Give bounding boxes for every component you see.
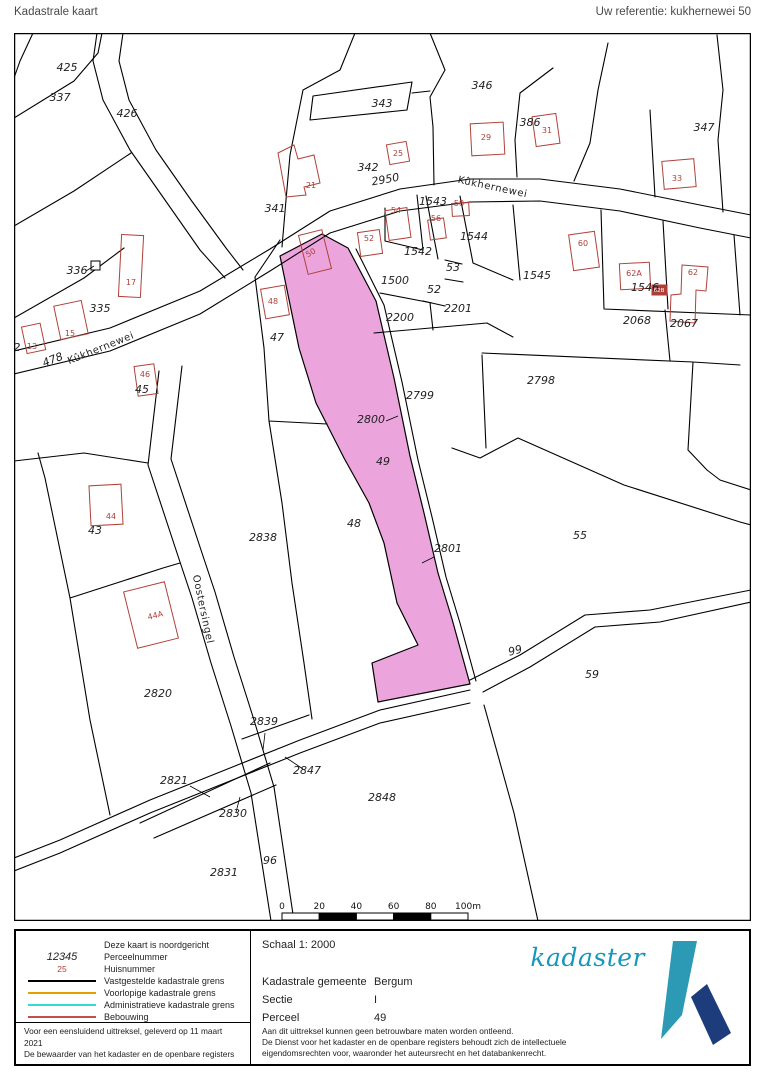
cadastral-extract-page: { "header": { "title": "Kadastrale kaart… [0, 0, 765, 1080]
parcel-label-2801: 2801 [434, 542, 462, 555]
road-name-0: Kûkhernewei [457, 174, 529, 200]
parcel-label-55: 55 [573, 529, 587, 542]
parcel-label-342: 342 [358, 161, 379, 174]
disclaimer-line: eigendomsrechten voor, waaronder het aut… [262, 1048, 572, 1059]
parcel-label-2799: 2799 [406, 389, 434, 402]
info-field: Perceel49 [262, 1009, 562, 1027]
legend-item-label: Bebouwing [104, 1011, 149, 1023]
house-number-44A: 44A [147, 609, 165, 622]
legend-item: Administratieve kadastrale grens [16, 999, 250, 1011]
parcel-label-1543: 1543 [419, 195, 447, 208]
legend-line-swatch [28, 992, 96, 994]
parcel-label-96: 96 [263, 854, 277, 867]
parcel-label-478: 478 [41, 350, 65, 370]
parcel-label-2830: 2830 [219, 807, 247, 820]
parcel-label-386: 386 [520, 116, 541, 129]
parcel-label-53: 53 [446, 261, 460, 274]
scale-bar-segment [356, 913, 393, 920]
parcel-label-335: 335 [90, 302, 111, 315]
parcel-label-43: 43 [88, 524, 102, 537]
kadaster-logo-mark [655, 939, 735, 1051]
house-number-58: 58 [454, 199, 464, 208]
house-number-13: 13 [27, 342, 37, 351]
info-field-value: 49 [374, 1009, 386, 1027]
parcel-label-49: 49 [376, 455, 390, 468]
parcel-label-425: 425 [57, 61, 78, 74]
house-number-21: 21 [306, 181, 316, 190]
scale-tick-80: 80 [425, 902, 437, 912]
parcel-label-1542: 1542 [404, 245, 432, 258]
legend-sample: 25 [26, 963, 98, 975]
parcel-label-2201: 2201 [444, 302, 472, 315]
page-header: Kadastrale kaart Uw referentie: kukherne… [14, 6, 751, 18]
parcel-label-2848: 2848 [368, 791, 396, 804]
house-number-33: 33 [672, 174, 682, 183]
scale-label: Schaal 1: 2000 [262, 939, 562, 951]
parcel-label-346: 346 [472, 79, 493, 92]
house-number-48: 48 [268, 297, 278, 306]
scale-bar: 020406080100m [279, 902, 481, 920]
house-number-52: 52 [364, 234, 374, 243]
info-field-value: Bergum [374, 973, 413, 991]
house-number-25: 25 [393, 149, 403, 158]
parcel-label-1544: 1544 [460, 230, 488, 243]
legend-item: 25Huisnummer [16, 963, 250, 975]
scale-bar-segment [319, 913, 356, 920]
parcel-label-48: 48 [347, 517, 361, 530]
scale-bar-segment [282, 913, 319, 920]
house-number-62: 62 [688, 268, 698, 277]
parcel-label-343: 343 [372, 97, 393, 110]
road-name-1: Kûkhernewei [66, 329, 136, 367]
legend-item-label: Administratieve kadastrale grens [104, 999, 235, 1011]
scale-tick-100m: 100m [455, 902, 481, 912]
legend-item: Vastgestelde kadastrale grens [16, 975, 250, 987]
parcel-label-1500: 1500 [381, 274, 409, 287]
parcel-label-52: 52 [427, 283, 441, 296]
legend-line-swatch [28, 1016, 96, 1018]
delivery-note: Voor een eensluidend uittreksel, gelever… [16, 1022, 250, 1064]
legend-item-label: Huisnummer [104, 963, 155, 975]
parcel-label-341: 341 [265, 202, 286, 215]
parcel-label-47: 47 [270, 331, 284, 344]
parcel-label-2068: 2068 [623, 314, 651, 327]
north-note: Deze kaart is noordgericht [104, 939, 209, 951]
legend-item-label: Vastgestelde kadastrale grens [104, 975, 224, 987]
legend-line-swatch [28, 980, 96, 982]
parcel-label-45: 45 [135, 383, 149, 396]
document-title: Kadastrale kaart [14, 6, 98, 18]
house-number-17: 17 [126, 278, 136, 287]
parcel-label-2798: 2798 [527, 374, 555, 387]
info-field: Kadastrale gemeenteBergum [262, 973, 562, 991]
legend-sample: 12345 [26, 951, 98, 963]
delivery-note-line1: Voor een eensluidend uittreksel, gelever… [24, 1026, 242, 1048]
house-number-44: 44 [106, 512, 116, 521]
legend-item: 12345Perceelnummer [16, 951, 250, 963]
scale-tick-60: 60 [388, 902, 400, 912]
legend-item: Bebouwing [16, 1011, 250, 1023]
building-17 [118, 234, 143, 297]
parcel-label-2800: 2800 [357, 413, 385, 426]
parcel-label-2820: 2820 [144, 687, 172, 700]
parcel-label-59: 59 [585, 668, 599, 681]
disclaimer-line: Aan dit uittreksel kunnen geen betrouwba… [262, 1026, 572, 1037]
parcel-label-336: 336 [67, 264, 88, 277]
selected-parcel-49 [280, 234, 470, 702]
house-number-62A: 62A [626, 269, 642, 278]
kadaster-logo-text: kadaster [530, 943, 645, 972]
house-number-54: 54 [391, 206, 401, 215]
cadastral-map: KûkherneweiKûkherneweiOostersingel 42533… [14, 33, 751, 921]
house-number-29: 29 [481, 133, 491, 142]
building-60 [569, 231, 600, 270]
parcel-label-337: 337 [50, 91, 71, 104]
scale-bar-segment [394, 913, 431, 920]
logo-mark-blue-leg [691, 984, 731, 1045]
info-field: SectieI [262, 991, 562, 1009]
info-field-label: Kadastrale gemeente [262, 973, 374, 991]
house-number-56: 56 [431, 214, 441, 223]
house-number-15: 15 [65, 329, 75, 338]
kadaster-logo: kadaster [530, 939, 735, 1051]
house-number-60: 60 [578, 239, 588, 248]
legend-info-panel: Deze kaart is noordgericht 12345Perceeln… [14, 929, 751, 1066]
parcel-label-2831: 2831 [210, 866, 238, 879]
legend: Deze kaart is noordgericht 12345Perceeln… [16, 931, 250, 1023]
info-field-value: I [374, 991, 377, 1009]
reference-label: Uw referentie: kukhernewei 50 [596, 6, 751, 18]
legend-item-label: Perceelnummer [104, 951, 168, 963]
parcel-label-99: 99 [507, 643, 524, 659]
info-field-label: Sectie [262, 991, 374, 1009]
road-name-labels: KûkherneweiKûkherneweiOostersingel [66, 174, 529, 645]
parcel-label-1545: 1545 [523, 269, 551, 282]
info-field-label: Perceel [262, 1009, 374, 1027]
road-name-2: Oostersingel [190, 574, 215, 645]
logo-mark-teal-blade [661, 941, 697, 1039]
scale-tick-20: 20 [313, 902, 325, 912]
delivery-note-line2: De bewaarder van het kadaster en de open… [24, 1049, 242, 1060]
panel-divider [250, 931, 251, 1064]
house-number-46: 46 [140, 370, 150, 379]
parcel-label-2847: 2847 [293, 764, 321, 777]
parcel-info: Schaal 1: 2000 Kadastrale gemeenteBergum… [262, 939, 562, 1027]
parcel-label-2838: 2838 [249, 531, 277, 544]
scale-tick-0: 0 [279, 902, 285, 912]
parcel-label-426: 426 [117, 107, 138, 120]
parcel-label-2839: 2839 [250, 715, 278, 728]
disclaimer-line: De Dienst voor het kadaster en de openba… [262, 1037, 572, 1048]
scale-tick-40: 40 [351, 902, 363, 912]
parcel-label-347: 347 [694, 121, 715, 134]
legal-disclaimer: Aan dit uittreksel kunnen geen betrouwba… [262, 1026, 572, 1059]
parcel-label-2821: 2821 [160, 774, 188, 787]
parcel-label-2200: 2200 [386, 311, 414, 324]
legend-item: Voorlopige kadastrale grens [16, 987, 250, 999]
map-container: KûkherneweiKûkherneweiOostersingel 42533… [14, 33, 751, 921]
house-number-62B: 62B [654, 288, 665, 294]
legend-item-label: Voorlopige kadastrale grens [104, 987, 216, 999]
scale-bar-segment [431, 913, 468, 920]
parcel-label-2067: 2067 [670, 317, 698, 330]
house-number-31: 31 [542, 126, 552, 135]
small-structure [91, 261, 100, 270]
legend-line-swatch [28, 1004, 96, 1006]
